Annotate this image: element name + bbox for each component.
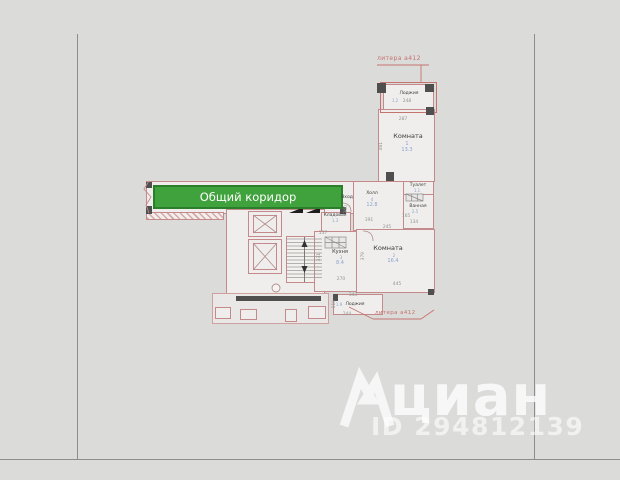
dim-391: 391 — [362, 219, 376, 224]
dim-248: 248 — [400, 100, 414, 105]
elevator-cab-1 — [253, 215, 277, 233]
frame-left-border — [77, 34, 78, 459]
bath-label: Ванная — [405, 205, 431, 210]
toilet-area: 1.1 — [410, 189, 424, 193]
loggia-top-label: Лоджия — [396, 92, 422, 97]
dim-360: 360 — [345, 202, 350, 216]
liter-annotation-top: литера а412 — [377, 56, 421, 62]
dim-270: 270 — [334, 278, 348, 283]
room2-label: Комната — [368, 245, 408, 252]
dim-244: 244 — [340, 313, 354, 318]
wall-block — [146, 182, 152, 188]
dim-134: 134 — [407, 221, 421, 226]
hall-area: 12.8 — [363, 203, 381, 208]
wall-block — [425, 84, 434, 92]
dim-331: 331 — [318, 250, 323, 264]
wall-block — [146, 206, 152, 214]
liter-annotation-bottom: литера а412 — [375, 311, 416, 317]
porch-column-1 — [215, 307, 231, 319]
wall-block — [428, 289, 434, 295]
dim-287: 287 — [396, 118, 410, 123]
dim-245: 245 — [380, 226, 394, 231]
outer-wall-hatched — [146, 212, 224, 220]
room1-label: Комната — [388, 133, 428, 140]
wall-block — [377, 83, 386, 93]
hall-label: Холл — [362, 192, 382, 197]
dim-481: 481 — [380, 139, 385, 153]
room1-area: 13.3 — [396, 148, 418, 153]
elevator-cab-2 — [253, 243, 277, 270]
room2-area: 16.4 — [382, 259, 404, 264]
common-corridor-banner: Общий коридор — [153, 185, 343, 209]
kitchen-area: 8.4 — [331, 261, 349, 266]
wall-block — [426, 107, 434, 115]
porch-column-4 — [308, 306, 326, 319]
dim-343: 343 — [346, 294, 360, 299]
loggia-bottom-label: Лоджия — [342, 303, 368, 308]
dim-379: 379 — [362, 249, 367, 263]
dim-137: 137 — [316, 232, 330, 237]
porch-slab — [236, 296, 321, 301]
storage-area: 1.3 — [327, 219, 343, 223]
listing-id-watermark: ID 294812139 — [371, 412, 584, 441]
frame-bottom-border — [0, 459, 620, 460]
wall-block — [386, 172, 394, 181]
dim-445: 445 — [390, 283, 404, 288]
porch-column-2 — [240, 309, 257, 320]
common-corridor-label: Общий коридор — [200, 190, 297, 204]
porch-column-3 — [285, 309, 297, 322]
entrance-label: Вход — [339, 196, 355, 201]
dim-165: 165 — [399, 215, 413, 220]
dim-110: 110 — [333, 297, 338, 311]
